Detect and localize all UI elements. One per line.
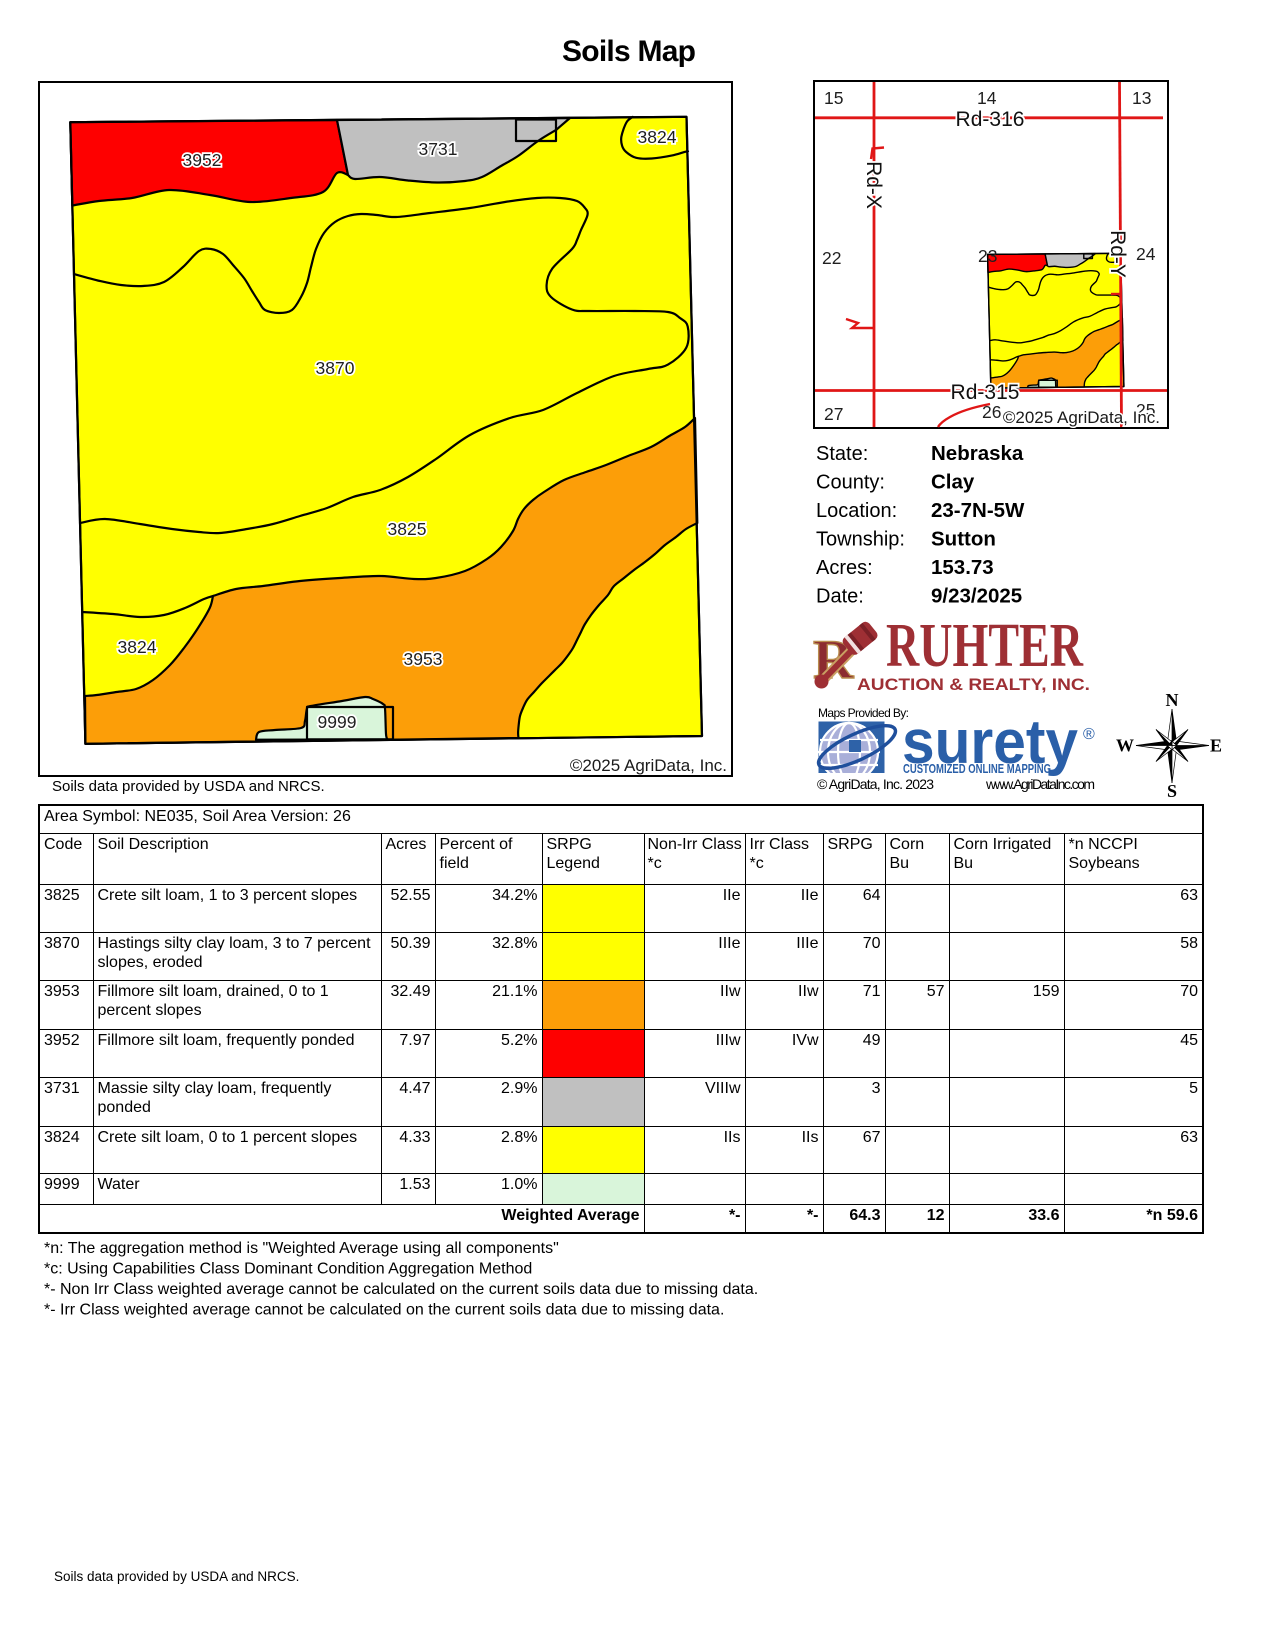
svg-text:3953: 3953: [404, 649, 443, 669]
svg-text:E: E: [1210, 736, 1222, 756]
svg-text:26: 26: [982, 402, 1001, 422]
svg-text:*- Irr Class weighted average: *- Irr Class weighted average cannot be …: [44, 1302, 724, 1319]
svg-text:Township:: Township:: [816, 529, 905, 551]
svg-text:© AgriData, Inc. 2023: © AgriData, Inc. 2023: [817, 776, 934, 792]
svg-text:3825: 3825: [388, 519, 427, 539]
svg-text:3731: 3731: [419, 139, 458, 159]
svg-text:Location:: Location:: [816, 500, 897, 522]
svg-text:Soils Map: Soils Map: [562, 35, 696, 68]
svg-text:15: 15: [824, 88, 843, 108]
svg-text:Rd-X: Rd-X: [862, 161, 885, 209]
svg-text:Rd-316: Rd-316: [956, 108, 1025, 131]
svg-text:W: W: [1116, 736, 1134, 756]
svg-text:Maps Provided By:: Maps Provided By:: [818, 706, 909, 720]
svg-text:S: S: [1167, 781, 1177, 801]
svg-text:Nebraska: Nebraska: [931, 442, 1024, 465]
svg-text:*- Non Irr Class weighted aver: *- Non Irr Class weighted average cannot…: [44, 1281, 758, 1298]
svg-text:22: 22: [822, 248, 841, 268]
svg-text:3870: 3870: [316, 358, 355, 378]
svg-text:®: ®: [1083, 726, 1095, 743]
svg-text:13: 13: [1132, 88, 1151, 108]
svg-text:Date:: Date:: [816, 586, 864, 608]
svg-text:Clay: Clay: [931, 471, 975, 494]
svg-text:Rd-Y: Rd-Y: [1106, 230, 1129, 278]
svg-text:27: 27: [824, 404, 843, 424]
svg-text:153.73: 153.73: [931, 556, 994, 579]
svg-text:Soils data provided by USDA an: Soils data provided by USDA and NRCS.: [52, 778, 325, 795]
svg-text:3824: 3824: [638, 127, 677, 147]
svg-text:Rd-315: Rd-315: [951, 381, 1020, 404]
svg-text:*n: The aggregation method is: *n: The aggregation method is "Weighted …: [44, 1240, 559, 1257]
svg-text:©2025 AgriData, Inc.: ©2025 AgriData, Inc.: [1003, 408, 1160, 427]
svg-text:Soils data provided by USDA an: Soils data provided by USDA and NRCS.: [54, 1569, 299, 1584]
svg-text:CUSTOMIZED ONLINE MAPPING: CUSTOMIZED ONLINE MAPPING: [903, 762, 1051, 776]
svg-text:23-7N-5W: 23-7N-5W: [931, 499, 1025, 522]
svg-text:*c: Using Capabilities Class D: *c: Using Capabilities Class Dominant Co…: [44, 1261, 532, 1278]
svg-text:State:: State:: [816, 443, 868, 465]
svg-text:AUCTION & REALTY, INC.: AUCTION & REALTY, INC.: [857, 675, 1090, 694]
svg-text:24: 24: [1136, 244, 1156, 264]
svg-text:14: 14: [977, 88, 997, 108]
svg-text:23: 23: [978, 246, 997, 266]
svg-text:3952: 3952: [183, 150, 222, 170]
svg-text:www.AgriDataInc.com: www.AgriDataInc.com: [985, 776, 1095, 792]
svg-text:9/23/2025: 9/23/2025: [931, 585, 1022, 608]
svg-text:3824: 3824: [118, 637, 157, 657]
svg-text:RUHTER: RUHTER: [886, 612, 1084, 680]
svg-text:9999: 9999: [318, 712, 357, 732]
svg-text:County:: County:: [816, 472, 885, 494]
svg-text:Sutton: Sutton: [931, 528, 996, 551]
svg-text:©2025 AgriData, Inc.: ©2025 AgriData, Inc.: [570, 756, 727, 775]
svg-text:Acres:: Acres:: [816, 557, 873, 579]
svg-text:N: N: [1166, 690, 1179, 710]
